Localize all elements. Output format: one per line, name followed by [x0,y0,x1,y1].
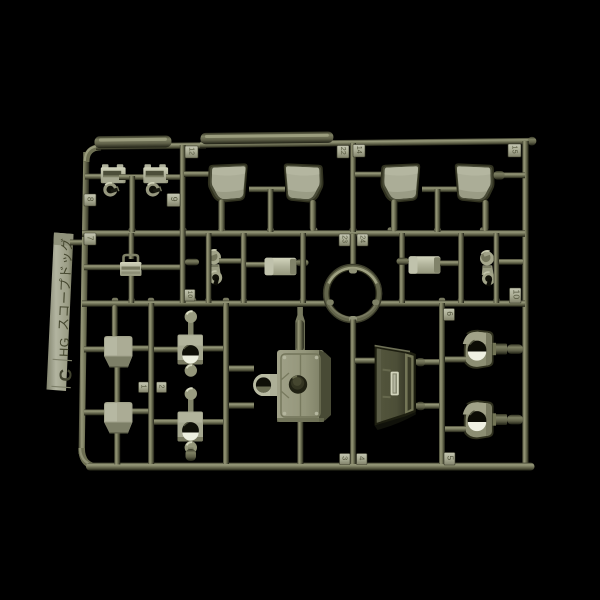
svg-text:22: 22 [339,147,348,155]
svg-text:5: 5 [445,456,455,461]
svg-text:8: 8 [86,197,95,202]
svg-text:6: 6 [445,311,454,316]
svg-text:15: 15 [510,145,519,153]
svg-text:1: 1 [140,385,148,389]
svg-text:24: 24 [359,235,366,243]
svg-text:23: 23 [341,235,348,243]
svg-text:10: 10 [511,290,521,300]
svg-text:9: 9 [169,197,179,202]
svg-text:4: 4 [358,456,367,460]
svg-text:7: 7 [86,236,95,241]
svg-text:2: 2 [158,385,166,389]
svg-text:12: 12 [187,147,194,155]
svg-text:3: 3 [341,456,350,460]
svg-text:10: 10 [186,291,193,299]
svg-text:HG: HG [57,337,72,357]
svg-text:14: 14 [355,146,364,154]
svg-text:C: C [56,369,76,382]
